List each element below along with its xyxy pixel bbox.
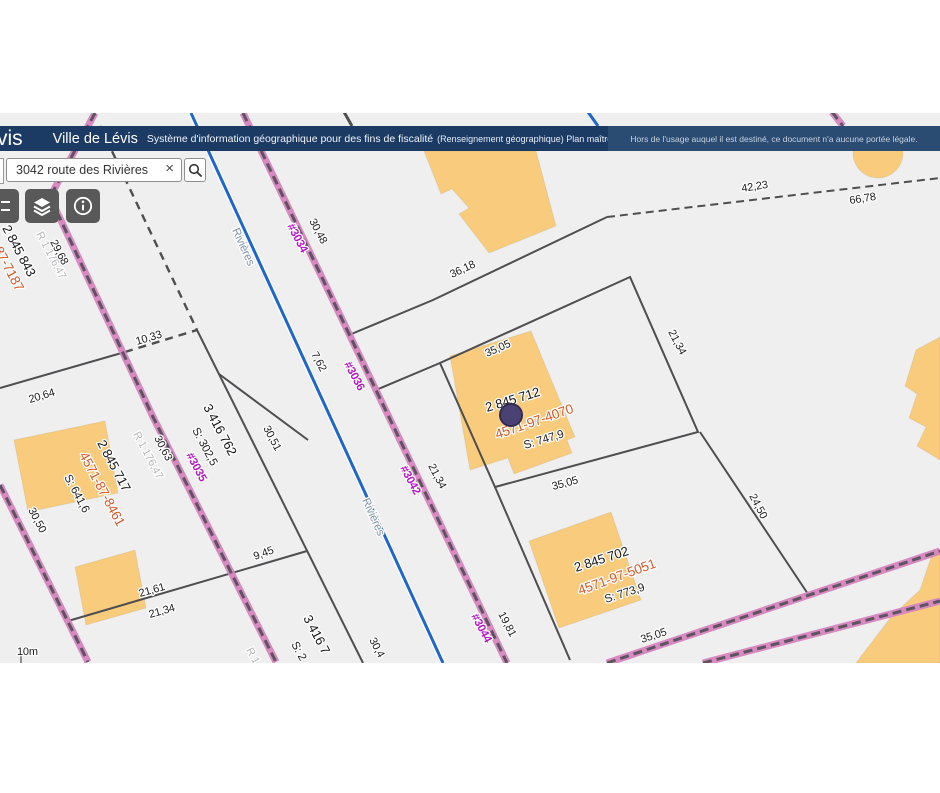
search-input[interactable] (7, 163, 163, 177)
map-label: 10m (17, 646, 38, 658)
search-box[interactable]: × (6, 158, 182, 182)
info-button[interactable] (66, 189, 100, 223)
info-icon (73, 196, 93, 216)
selected-parcel-marker (500, 404, 522, 426)
app-subtitle: Système d'information géographique pour … (147, 133, 433, 145)
levis-logo-fragment: vis (0, 126, 23, 151)
app-header: vis Ville de Lévis Système d'information… (0, 126, 940, 151)
app-subtitle-small: (Renseignement géographique) Plan maître (437, 134, 612, 144)
search-icon (188, 163, 202, 177)
clear-search-icon[interactable]: × (163, 158, 181, 182)
legal-disclaimer: Hors de l'usage auquel il est destiné, c… (608, 126, 940, 151)
legend-icon (0, 197, 11, 215)
page-margin-bottom (0, 663, 940, 788)
layers-button[interactable] (25, 189, 59, 223)
legend-button[interactable] (0, 189, 19, 223)
app-title: Ville de Lévis (53, 131, 138, 147)
search-button[interactable] (184, 158, 206, 182)
layers-icon (32, 196, 52, 216)
page-margin-top (0, 0, 940, 113)
search-panel-edge (0, 158, 4, 184)
